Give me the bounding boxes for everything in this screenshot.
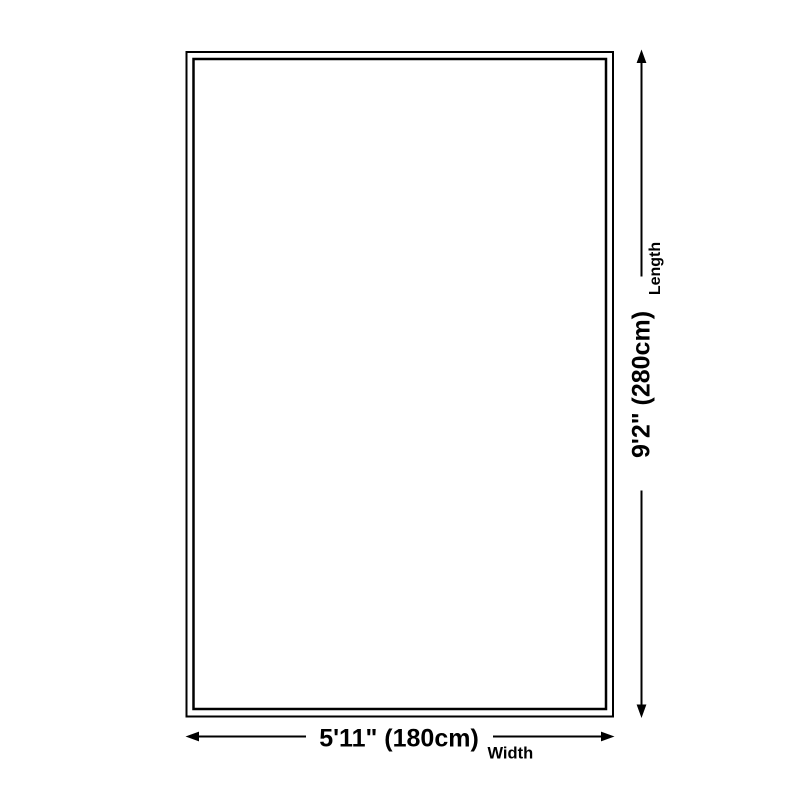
svg-text:Length: Length bbox=[647, 242, 664, 295]
svg-text:9'2" (280cm): 9'2" (280cm) bbox=[628, 311, 656, 458]
svg-text:Width: Width bbox=[488, 745, 534, 763]
svg-text:5'11" (180cm): 5'11" (180cm) bbox=[319, 725, 479, 753]
